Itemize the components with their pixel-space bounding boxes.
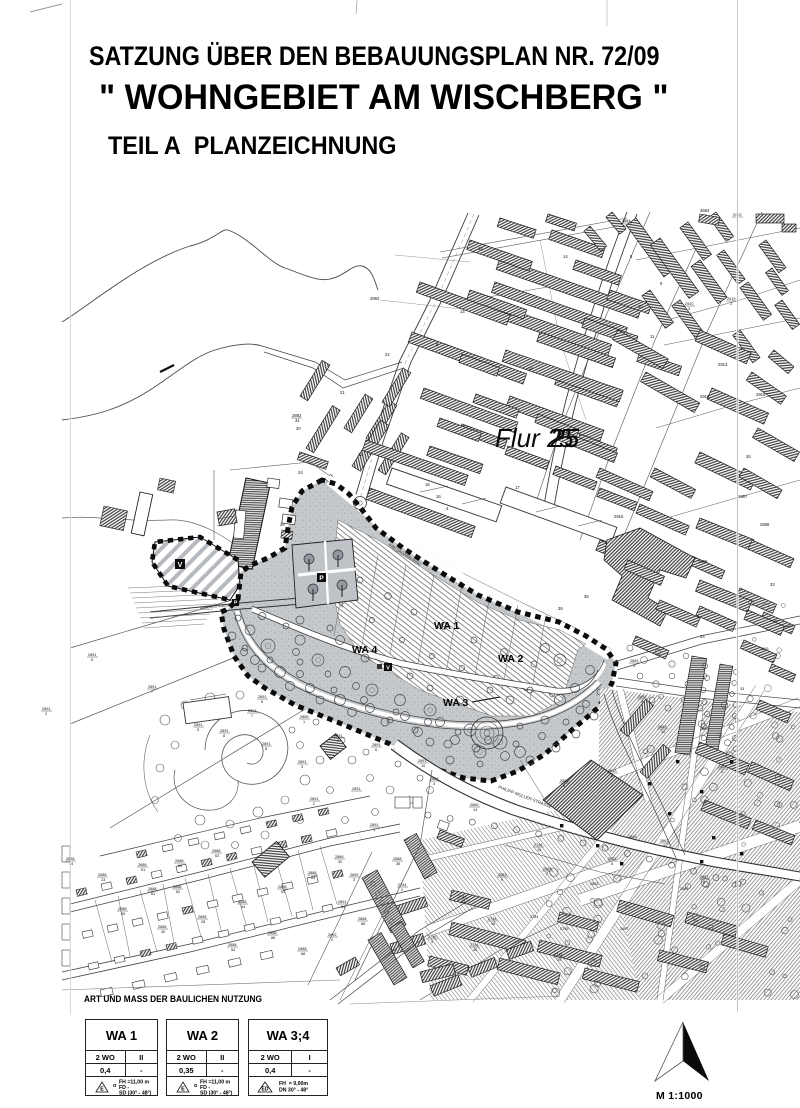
svg-text:2898: 2898 bbox=[698, 559, 708, 564]
svg-text:38: 38 bbox=[558, 606, 563, 611]
svg-text:2889: 2889 bbox=[300, 715, 308, 719]
svg-text:9: 9 bbox=[91, 658, 93, 662]
svg-text:86: 86 bbox=[271, 936, 275, 940]
svg-text:2888: 2888 bbox=[308, 871, 316, 875]
svg-text:2883: 2883 bbox=[430, 777, 438, 781]
svg-text:53: 53 bbox=[281, 890, 285, 894]
svg-text:V: V bbox=[178, 562, 183, 569]
svg-text:E: E bbox=[100, 1087, 104, 1093]
svg-text:5: 5 bbox=[633, 664, 635, 668]
svg-text:2663: 2663 bbox=[760, 647, 768, 651]
svg-text:2688: 2688 bbox=[98, 873, 106, 877]
svg-text:SD (30° - 48°): SD (30° - 48°) bbox=[119, 1091, 152, 1097]
svg-text:2688: 2688 bbox=[158, 925, 166, 929]
svg-text:46: 46 bbox=[491, 922, 495, 926]
svg-text:40: 40 bbox=[473, 948, 477, 952]
svg-text:14: 14 bbox=[478, 246, 483, 251]
svg-text:9: 9 bbox=[431, 940, 433, 944]
svg-text:26: 26 bbox=[746, 454, 751, 459]
svg-text:SD (30° - 48°): SD (30° - 48°) bbox=[200, 1091, 233, 1097]
svg-text:2667: 2667 bbox=[660, 839, 668, 843]
svg-text:22: 22 bbox=[385, 352, 390, 357]
svg-text:33: 33 bbox=[770, 582, 775, 587]
svg-text:3: 3 bbox=[433, 782, 435, 786]
svg-text:8: 8 bbox=[223, 734, 225, 738]
svg-text:2663: 2663 bbox=[560, 779, 568, 783]
svg-text:3: 3 bbox=[688, 307, 690, 311]
svg-text:2897: 2897 bbox=[738, 494, 748, 499]
svg-text:17: 17 bbox=[515, 485, 520, 490]
svg-text:2746: 2746 bbox=[428, 935, 436, 939]
svg-text:14: 14 bbox=[460, 309, 465, 314]
svg-text:15: 15 bbox=[425, 482, 430, 487]
svg-text:2892: 2892 bbox=[370, 296, 380, 301]
svg-text:2663: 2663 bbox=[608, 769, 616, 773]
svg-text:10: 10 bbox=[661, 730, 665, 734]
svg-text:31: 31 bbox=[295, 418, 300, 423]
svg-text:61: 61 bbox=[141, 868, 145, 872]
svg-text:8: 8 bbox=[265, 747, 267, 751]
svg-text:8: 8 bbox=[630, 254, 633, 259]
svg-text:2888: 2888 bbox=[173, 885, 181, 889]
svg-text:84: 84 bbox=[311, 876, 315, 880]
svg-text:DN 30° - 48°: DN 30° - 48° bbox=[279, 1088, 308, 1094]
svg-text:2920: 2920 bbox=[685, 302, 693, 306]
svg-text:2744: 2744 bbox=[554, 953, 562, 957]
svg-text:36: 36 bbox=[396, 862, 400, 866]
svg-text:2744: 2744 bbox=[398, 883, 406, 887]
svg-text:P: P bbox=[319, 575, 324, 582]
svg-text:14: 14 bbox=[563, 254, 568, 259]
svg-text:2915: 2915 bbox=[614, 514, 624, 519]
svg-text:2688: 2688 bbox=[138, 863, 146, 867]
svg-text:2688: 2688 bbox=[175, 859, 183, 863]
svg-text:WA 3: WA 3 bbox=[443, 697, 468, 709]
svg-text:5: 5 bbox=[197, 728, 199, 732]
svg-text:2891: 2891 bbox=[194, 723, 202, 727]
svg-text:5: 5 bbox=[611, 862, 613, 866]
svg-text:2692: 2692 bbox=[630, 659, 638, 663]
svg-text:2891: 2891 bbox=[88, 653, 96, 657]
svg-text:2888: 2888 bbox=[268, 931, 276, 935]
svg-text:6: 6 bbox=[375, 748, 377, 752]
svg-text:4: 4 bbox=[703, 880, 705, 884]
svg-text:2744: 2744 bbox=[488, 917, 496, 921]
svg-text:2891: 2891 bbox=[220, 729, 228, 733]
svg-text:2898: 2898 bbox=[760, 522, 770, 527]
svg-text:2687: 2687 bbox=[718, 765, 726, 769]
svg-text:2891: 2891 bbox=[372, 743, 380, 747]
svg-text:2688: 2688 bbox=[118, 907, 126, 911]
svg-text:14: 14 bbox=[528, 366, 533, 371]
svg-text:16: 16 bbox=[436, 494, 441, 499]
svg-text:E: E bbox=[181, 1087, 185, 1093]
svg-text:23: 23 bbox=[101, 878, 105, 882]
svg-text:2667: 2667 bbox=[608, 857, 616, 861]
svg-text:28: 28 bbox=[201, 920, 205, 924]
svg-text:2915: 2915 bbox=[756, 392, 766, 397]
svg-text:2892: 2892 bbox=[328, 933, 336, 937]
svg-text:2891: 2891 bbox=[148, 685, 156, 689]
svg-text:2913: 2913 bbox=[718, 362, 728, 367]
svg-text:2891: 2891 bbox=[370, 823, 378, 827]
svg-text:2744: 2744 bbox=[458, 895, 466, 899]
svg-text:10: 10 bbox=[421, 764, 425, 768]
svg-text:2891: 2891 bbox=[334, 734, 342, 738]
svg-text:o: o bbox=[113, 1083, 117, 1089]
svg-text:2: 2 bbox=[663, 844, 665, 848]
svg-text:2: 2 bbox=[45, 712, 47, 716]
svg-text:81: 81 bbox=[151, 892, 155, 896]
svg-text:2919: 2919 bbox=[727, 297, 735, 301]
svg-text:2: 2 bbox=[401, 888, 403, 892]
svg-text:82: 82 bbox=[176, 890, 180, 894]
svg-text:2688: 2688 bbox=[212, 849, 220, 853]
svg-text:14: 14 bbox=[473, 808, 477, 812]
svg-text:2667: 2667 bbox=[680, 887, 688, 891]
svg-text:2663: 2663 bbox=[543, 867, 551, 871]
svg-text:2892: 2892 bbox=[638, 695, 646, 699]
svg-text:2880: 2880 bbox=[470, 803, 478, 807]
svg-text:2: 2 bbox=[625, 224, 627, 228]
svg-text:64: 64 bbox=[241, 905, 245, 909]
svg-text:2744: 2744 bbox=[530, 915, 538, 919]
svg-text:33: 33 bbox=[740, 687, 744, 691]
svg-text:2667: 2667 bbox=[620, 927, 628, 931]
svg-text:2891: 2891 bbox=[258, 695, 266, 699]
svg-text:2683: 2683 bbox=[628, 835, 636, 839]
svg-text:40: 40 bbox=[161, 930, 165, 934]
svg-text:2746: 2746 bbox=[534, 843, 542, 847]
svg-text:7: 7 bbox=[251, 714, 253, 718]
svg-text:88: 88 bbox=[301, 952, 305, 956]
svg-text:4684: 4684 bbox=[622, 219, 630, 223]
svg-text:9: 9 bbox=[660, 281, 663, 286]
svg-text:2683: 2683 bbox=[700, 727, 708, 731]
svg-text:2745: 2745 bbox=[560, 927, 568, 931]
svg-text:2663: 2663 bbox=[658, 725, 666, 729]
svg-text:1: 1 bbox=[373, 828, 375, 832]
svg-text:9: 9 bbox=[641, 700, 643, 704]
svg-text:2744: 2744 bbox=[470, 943, 478, 947]
svg-text:9: 9 bbox=[563, 784, 565, 788]
svg-text:3: 3 bbox=[301, 765, 303, 769]
svg-text:2688: 2688 bbox=[238, 900, 246, 904]
svg-text:23: 23 bbox=[358, 452, 363, 457]
svg-text:4: 4 bbox=[337, 739, 339, 743]
svg-text:4684: 4684 bbox=[700, 208, 710, 213]
svg-text:2888: 2888 bbox=[198, 915, 206, 919]
svg-text:2891: 2891 bbox=[352, 787, 360, 791]
svg-text:2688: 2688 bbox=[148, 887, 156, 891]
svg-text:10: 10 bbox=[638, 304, 643, 309]
svg-text:11: 11 bbox=[650, 334, 655, 339]
svg-text:FH = 9,00m: FH = 9,00m bbox=[279, 1081, 308, 1087]
svg-text:20: 20 bbox=[296, 426, 301, 431]
svg-text:2888: 2888 bbox=[298, 947, 306, 951]
svg-text:21: 21 bbox=[340, 390, 345, 395]
svg-text:2692: 2692 bbox=[350, 873, 358, 877]
svg-text:63: 63 bbox=[215, 854, 219, 858]
svg-text:60: 60 bbox=[178, 864, 182, 868]
svg-text:2916: 2916 bbox=[700, 394, 710, 399]
svg-text:39: 39 bbox=[557, 958, 561, 962]
svg-text:2667: 2667 bbox=[700, 875, 708, 879]
svg-text:30: 30 bbox=[338, 860, 342, 864]
svg-text:2: 2 bbox=[721, 770, 723, 774]
svg-text:6: 6 bbox=[261, 700, 263, 704]
svg-text:2888: 2888 bbox=[358, 917, 366, 921]
svg-text:2891: 2891 bbox=[262, 742, 270, 746]
svg-text:1: 1 bbox=[303, 720, 305, 724]
svg-text:2688: 2688 bbox=[228, 943, 236, 947]
svg-text:7: 7 bbox=[151, 690, 153, 694]
svg-text:54: 54 bbox=[231, 948, 235, 952]
svg-text:2: 2 bbox=[730, 302, 732, 306]
svg-text:2891: 2891 bbox=[338, 900, 346, 904]
svg-text:86: 86 bbox=[361, 922, 365, 926]
svg-text:2: 2 bbox=[331, 938, 333, 942]
svg-text:24: 24 bbox=[298, 470, 303, 475]
svg-text:WA 1: WA 1 bbox=[434, 620, 459, 632]
svg-text:3: 3 bbox=[353, 878, 355, 882]
svg-text:5: 5 bbox=[559, 423, 574, 453]
svg-text:WA 2: WA 2 bbox=[498, 653, 523, 665]
svg-text:2891: 2891 bbox=[298, 760, 306, 764]
svg-text:2688: 2688 bbox=[393, 857, 401, 861]
svg-text:2891: 2891 bbox=[248, 709, 256, 713]
svg-text:2891: 2891 bbox=[42, 707, 50, 711]
svg-text:2: 2 bbox=[546, 872, 548, 876]
svg-text:2891: 2891 bbox=[418, 759, 426, 763]
svg-text:4: 4 bbox=[446, 506, 449, 511]
svg-text:9: 9 bbox=[501, 878, 503, 882]
svg-text:14: 14 bbox=[537, 848, 541, 852]
svg-text:2688: 2688 bbox=[278, 885, 286, 889]
svg-text:36: 36 bbox=[584, 594, 589, 599]
svg-text:WA 4: WA 4 bbox=[352, 644, 377, 656]
svg-text:ED: ED bbox=[262, 1087, 269, 1093]
svg-text:o: o bbox=[194, 1083, 198, 1089]
svg-text:V: V bbox=[386, 666, 390, 672]
svg-text:2683: 2683 bbox=[498, 873, 506, 877]
svg-text:2888: 2888 bbox=[335, 855, 343, 859]
svg-text:2: 2 bbox=[313, 802, 315, 806]
svg-text:2663: 2663 bbox=[590, 882, 598, 886]
svg-text:8: 8 bbox=[611, 774, 613, 778]
svg-text:50: 50 bbox=[121, 912, 125, 916]
svg-text:2891: 2891 bbox=[310, 797, 318, 801]
